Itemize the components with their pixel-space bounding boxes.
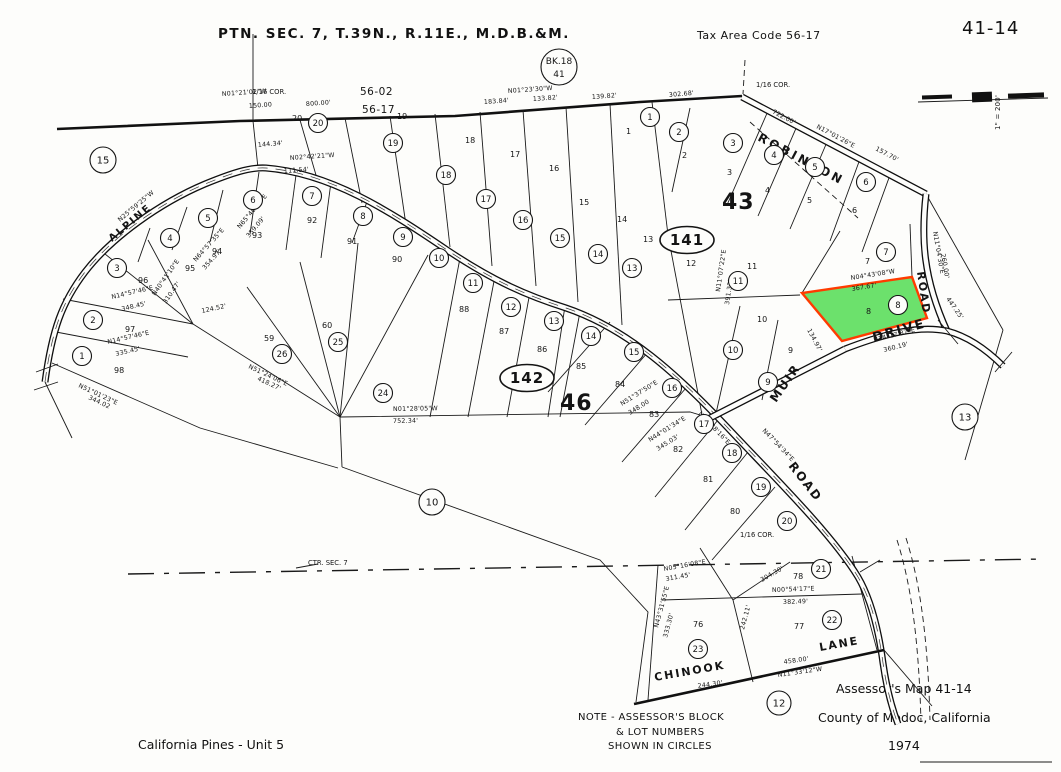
block-number-label: 43 <box>722 190 755 215</box>
circled-lot-2: 2 <box>670 123 689 142</box>
survey-label: 302.68' <box>669 90 695 99</box>
circled-lot-26: 26 <box>273 345 292 364</box>
circled-lot-21: 21 <box>812 560 831 579</box>
book-circle: BK.18 41 <box>541 49 577 85</box>
circled-lot-number: 13 <box>549 317 560 327</box>
survey-label: 348.45' <box>121 300 147 312</box>
circled-lot-17: 17 <box>695 415 714 434</box>
tax-boundary-code: 56-02 <box>360 86 393 98</box>
lot-number-label: 81 <box>703 475 713 484</box>
circled-lot-14: 14 <box>589 245 608 264</box>
circled-lot-11: 11 <box>729 272 748 291</box>
circled-lot-5: 5 <box>806 158 825 177</box>
circled-lot-number: 13 <box>959 413 972 424</box>
block-oval-141: 141 <box>660 227 714 254</box>
circled-lot-number: 3 <box>730 139 735 149</box>
lot-number-label: 4 <box>765 186 770 195</box>
lot-number-label: 86 <box>537 345 547 354</box>
circled-lot-13: 13 <box>623 259 642 278</box>
circled-lot-19: 19 <box>384 134 403 153</box>
lot-number-label: 76 <box>693 620 703 629</box>
circled-lot-number: 11 <box>733 277 744 287</box>
circled-lot-number: 24 <box>378 389 389 399</box>
circled-lot-16: 16 <box>663 379 682 398</box>
survey-label: 335.45' <box>115 345 141 357</box>
circled-lot-6: 6 <box>857 173 876 192</box>
circled-lot-number: 12 <box>773 699 786 710</box>
circled-lot-number: 17 <box>699 420 710 430</box>
circled-lot-10: 10 <box>419 489 445 515</box>
lot-number-label: 11 <box>747 262 757 271</box>
circled-lot-4: 4 <box>161 229 180 248</box>
circled-lot-14: 14 <box>582 327 601 346</box>
circled-lot-8: 8 <box>889 296 908 315</box>
circled-lot-number: 3 <box>114 264 119 274</box>
circled-lot-number: 15 <box>97 156 110 167</box>
survey-label: 382.49' <box>783 598 808 606</box>
scale-label: 1" = 200' <box>994 95 1002 130</box>
lot-number-label: 85 <box>576 362 586 371</box>
circled-lot-3: 3 <box>724 134 743 153</box>
lot-number-label: 88 <box>459 305 469 314</box>
circled-lot-20: 20 <box>778 512 797 531</box>
circled-lot-number: 13 <box>627 264 638 274</box>
survey-label: 134.97' <box>805 328 823 354</box>
survey-label: 133.82' <box>533 94 559 103</box>
circled-lot-number: 5 <box>205 214 210 224</box>
scale-bar: 1" = 200' <box>918 92 1048 130</box>
circled-lot-number: 2 <box>676 128 681 138</box>
lot-number-label: 18 <box>465 136 475 145</box>
lot-number-label: 83 <box>649 410 659 419</box>
circled-lot-7: 7 <box>303 187 322 206</box>
circled-lot-number: 1 <box>647 113 652 123</box>
lot-number-label: 84 <box>615 380 625 389</box>
circled-lot-15: 15 <box>551 229 570 248</box>
circled-lot-number: 11 <box>468 279 479 289</box>
survey-label: 242.11' <box>739 604 752 630</box>
lot-number-label: 80 <box>730 507 740 516</box>
circled-lot-number: 10 <box>426 498 439 509</box>
circled-lot-number: 12 <box>506 303 517 313</box>
circled-lot-number: 6 <box>250 196 255 206</box>
circled-lot-23: 23 <box>689 640 708 659</box>
circled-lot-8: 8 <box>354 207 373 226</box>
block-oval-number: 142 <box>510 369 544 387</box>
circled-lot-17: 17 <box>477 190 496 209</box>
survey-label: 311.45' <box>665 572 691 583</box>
circled-lot-number: 9 <box>765 378 770 388</box>
lot-number-label: 7 <box>865 257 870 266</box>
circled-lot-number: 26 <box>277 350 288 360</box>
survey-label: 183.84' <box>484 97 510 106</box>
circled-lot-number: 18 <box>727 449 738 459</box>
assessor-lot-circles: 1411421510131220191817161514138910111213… <box>73 108 979 716</box>
lot-number-label: 87 <box>499 327 509 336</box>
lot-number-label: 82 <box>673 445 683 454</box>
lot-number-label: 10 <box>757 315 767 324</box>
corner-label: CTR. SEC. 7 <box>308 559 348 567</box>
circled-lot-10: 10 <box>724 341 743 360</box>
circled-lot-16: 16 <box>514 211 533 230</box>
circled-lot-number: 20 <box>782 517 793 527</box>
circled-lot-20: 20 <box>309 114 328 133</box>
survey-label: N00°54'17"E <box>772 585 815 594</box>
circled-lot-number: 15 <box>555 234 566 244</box>
lot-number-label: 8 <box>866 307 871 316</box>
lot-number-label: 12 <box>686 259 696 268</box>
lot-number-label: 9 <box>788 346 793 355</box>
lot-number-label: 94 <box>212 247 222 256</box>
tax-boundary-code: 56-17 <box>362 104 395 116</box>
circled-lot-12: 12 <box>502 298 521 317</box>
circled-lot-number: 16 <box>667 384 678 394</box>
circled-lot-9: 9 <box>394 228 413 247</box>
block-oval-142: 142 <box>500 365 554 392</box>
circled-lot-19: 19 <box>752 478 771 497</box>
survey-label: N47°54'34"E <box>761 427 796 463</box>
corner-label: 1/16 COR. <box>756 81 790 89</box>
survey-label: 752.34' <box>393 418 418 425</box>
corner-label: 1/16 COR. <box>252 88 286 96</box>
circled-lot-15: 15 <box>625 343 644 362</box>
survey-label: 139.82' <box>592 92 618 101</box>
circled-lot-number: 15 <box>629 348 640 358</box>
circled-lot-number: 21 <box>816 565 827 575</box>
circled-lot-number: 9 <box>400 233 405 243</box>
survey-label: 150.00 <box>249 101 273 110</box>
survey-label: 333.30' <box>662 612 675 638</box>
survey-label: 360.19' <box>883 341 909 354</box>
circled-lot-number: 22 <box>827 616 838 626</box>
survey-label: 124.52' <box>201 303 227 315</box>
lot-number-label: 2 <box>682 151 687 160</box>
circled-lot-13: 13 <box>545 312 564 331</box>
circled-lot-25: 25 <box>329 333 348 352</box>
circled-lot-number: 7 <box>883 248 888 258</box>
lot-number-label: 5 <box>807 196 812 205</box>
road-name-label: LANE <box>818 634 860 654</box>
corner-label: 1/16 COR. <box>740 531 774 539</box>
circled-lot-12: 12 <box>767 691 791 715</box>
circled-lot-number: 4 <box>167 234 172 244</box>
lot-number-label: 90 <box>392 255 402 264</box>
circled-lot-number: 10 <box>728 346 739 356</box>
parcel-map-canvas: BK.18 41 1" = 200' N01°21'02"W150.00800.… <box>0 0 1061 772</box>
lot-number-label: 15 <box>579 198 589 207</box>
survey-ticks <box>34 320 1012 572</box>
lot-number-label: 98 <box>114 366 124 375</box>
book-circle-book: BK.18 <box>546 57 573 67</box>
circled-lot-number: 16 <box>518 216 529 226</box>
circled-lot-5: 5 <box>199 209 218 228</box>
circled-lot-number: 23 <box>693 645 704 655</box>
circled-lot-7: 7 <box>877 243 896 262</box>
circled-lot-number: 20 <box>313 119 324 129</box>
circled-lot-10: 10 <box>430 249 449 268</box>
lot-number-label: 92 <box>307 216 317 225</box>
lot-number-label: 78 <box>793 572 803 581</box>
circled-lot-number: 17 <box>481 195 492 205</box>
circled-lot-number: 5 <box>812 163 817 173</box>
circled-lot-number: 8 <box>895 301 900 311</box>
circled-lot-number: 19 <box>756 483 767 493</box>
circled-lot-4: 4 <box>765 146 784 165</box>
circled-lot-number: 14 <box>593 250 604 260</box>
block-oval-number: 141 <box>670 231 704 249</box>
survey-label: 157.70' <box>874 146 900 164</box>
circled-lot-11: 11 <box>464 274 483 293</box>
circled-lot-22: 22 <box>823 611 842 630</box>
lot-number-label: 93 <box>252 231 262 240</box>
lot-number-label: 20 <box>292 114 302 123</box>
survey-label: 447.25' <box>944 296 964 321</box>
lot-number-label: 3 <box>727 168 732 177</box>
circled-lot-number: 1 <box>79 352 84 362</box>
assessor-map-page: PTN. SEC. 7, T.39N., R.11E., M.D.B.&M. T… <box>0 0 1061 772</box>
circled-lot-number: 6 <box>863 178 868 188</box>
circled-lot-1: 1 <box>73 347 92 366</box>
circled-lot-number: 14 <box>586 332 597 342</box>
lot-number-label: 17 <box>510 150 520 159</box>
lot-number-label: 1 <box>626 127 631 136</box>
survey-label: 458.00' <box>783 656 809 666</box>
circled-lot-9: 9 <box>759 373 778 392</box>
lot-number-label: 16 <box>549 164 559 173</box>
survey-label: N02°42'21"W <box>290 151 336 162</box>
lot-number-label: 77 <box>794 622 804 631</box>
circled-lot-18: 18 <box>723 444 742 463</box>
circled-lot-number: 25 <box>333 338 344 348</box>
circled-lot-3: 3 <box>108 259 127 278</box>
block-number-label: 46 <box>560 391 593 416</box>
lot-number-label: 13 <box>643 235 653 244</box>
lot-number-label: 97 <box>125 325 135 334</box>
circled-lot-15: 15 <box>90 147 116 173</box>
circled-lot-1: 1 <box>641 108 660 127</box>
survey-label: N01°23'30"W <box>508 84 554 95</box>
lot-number-label: 60 <box>322 321 332 330</box>
circled-lot-number: 19 <box>388 139 399 149</box>
survey-label: N05°16'08"E <box>663 558 706 573</box>
circled-lot-number: 10 <box>434 254 445 264</box>
lot-number-label: 59 <box>264 334 274 343</box>
lot-number-label: 6 <box>852 206 857 215</box>
lot-number-label: 91 <box>347 237 357 246</box>
circled-lot-number: 7 <box>309 192 314 202</box>
circled-lot-6: 6 <box>244 191 263 210</box>
book-circle-page: 41 <box>553 70 564 80</box>
circled-lot-13: 13 <box>952 404 978 430</box>
survey-label: 800.00' <box>306 99 332 108</box>
circled-lot-number: 18 <box>441 171 452 181</box>
circled-lot-24: 24 <box>374 384 393 403</box>
survey-label: 144.34' <box>258 140 284 149</box>
circled-lot-2: 2 <box>84 311 103 330</box>
lot-number-label: 96 <box>138 276 148 285</box>
circled-lot-number: 2 <box>90 316 95 326</box>
circled-lot-number: 8 <box>360 212 365 222</box>
survey-label: N14°57'46"E <box>111 284 154 301</box>
survey-label: N01°28'05"W <box>393 404 439 413</box>
lot-number-label: 95 <box>185 264 195 273</box>
road-alpine-main <box>45 168 898 724</box>
circled-lot-18: 18 <box>437 166 456 185</box>
survey-label: 304.30' <box>760 565 785 584</box>
lot-number-label: 19 <box>397 112 407 121</box>
lot-number-label: 14 <box>617 215 627 224</box>
circled-lot-number: 4 <box>771 151 776 161</box>
